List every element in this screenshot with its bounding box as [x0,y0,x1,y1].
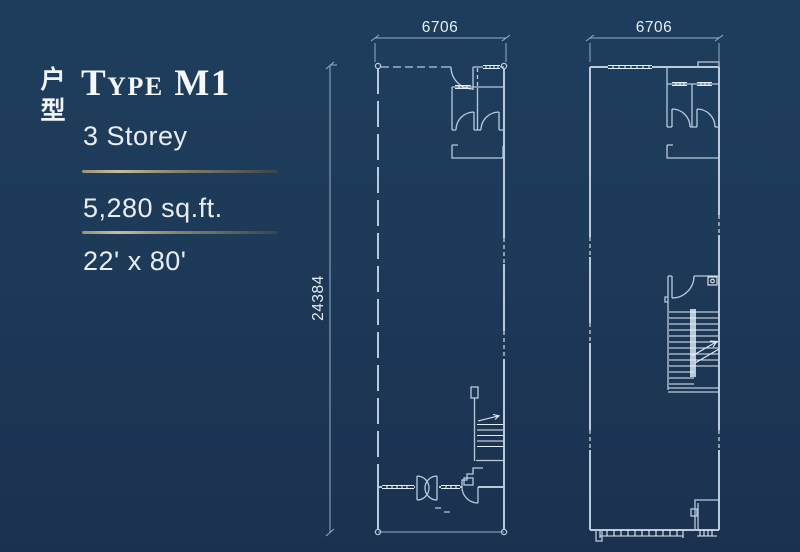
upper-staircase [665,276,719,392]
ground-staircase [462,387,504,487]
ground-floor-plan: 6706 24384 [310,19,510,536]
upper-toilet-block [667,67,719,158]
upper-floor-plan: 6706 [586,19,723,541]
ground-dimensions: 6706 24384 [310,19,510,536]
upper-outline [590,62,719,541]
upper-dimensions: 6706 [586,19,723,62]
upper-width-dimension-label: 6706 [636,19,672,36]
floorplans-canvas: 6706 24384 [0,0,800,552]
brochure-page: 户型 Type M1 3 Storey 5,280 sq.ft. 22' x 8… [0,0,800,552]
ground-width-dimension-label: 6706 [422,19,458,36]
ground-front-wall [378,476,504,512]
ground-depth-dimension-label: 24384 [310,275,327,321]
ground-outline [375,63,506,534]
ground-toilet-block [452,68,503,158]
